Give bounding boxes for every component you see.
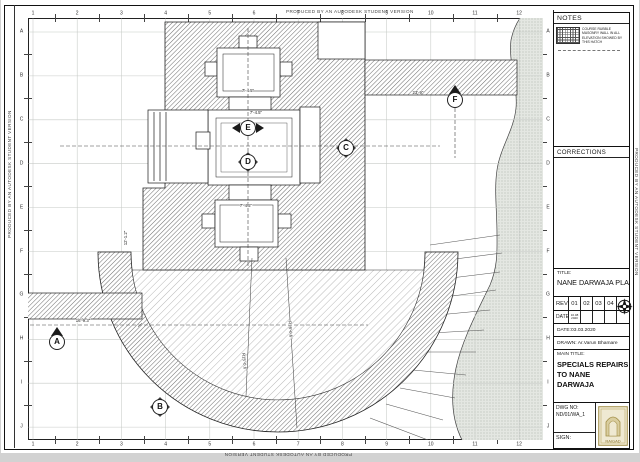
date-row-value: 16.08 2020 <box>569 311 581 323</box>
dimension-label: 16'-9.3" <box>76 318 91 323</box>
main-title-line1: SPECIALS REPAIRS <box>557 360 629 370</box>
dwg-no-value: ND/01/WA_1 <box>554 411 595 418</box>
rev-cell-03: 03 <box>593 297 605 310</box>
stamp-text: RAIGAD <box>605 439 620 444</box>
date-row-empty-1 <box>581 311 593 323</box>
title-section: TITLE: NANE DARWAJA PLAN <box>554 269 629 297</box>
dimension-label: 7'-4.5" <box>250 110 263 115</box>
corrections-section: CORRECTIONS <box>554 147 629 269</box>
east-wall-arm <box>365 60 517 95</box>
autodesk-banner-right: PRODUCED BY AN AUTODESK STUDENT VERSION <box>633 148 638 276</box>
title-label: TITLE: <box>554 269 629 276</box>
autodesk-banner-bottom: PRODUCED BY AN AUTODESK STUDENT VERSION <box>224 451 352 456</box>
left-wall <box>28 293 142 319</box>
dwg-no-cell: DWG NO: ND/01/WA_1 SIGN: <box>554 403 596 449</box>
rev-label: REV <box>554 297 569 310</box>
date-line: DATE:03.03.2020 <box>554 324 629 337</box>
sign-label: SIGN: <box>554 432 595 449</box>
drawing-title: NANE DARWAJA PLAN <box>554 276 629 287</box>
rev-cell-02: 02 <box>581 297 593 310</box>
autodesk-banner-left: PRODUCED BY AN AUTODESK STUDENT VERSION <box>8 110 13 238</box>
notes-legend: COURSE RUBBLE MASONRY WALL IN ALL ELEVAT… <box>556 27 627 44</box>
left-margin-line <box>14 5 15 448</box>
dimension-label: 12'-1.2" <box>123 230 128 245</box>
stamp-cell: RAIGAD <box>596 403 629 449</box>
drawn-line: DRAWN: Ar.Varun Bhamare <box>554 337 629 350</box>
masonry-hatch-swatch <box>556 27 580 44</box>
notes-section: NOTES COURSE RUBBLE MASONRY WALL IN ALL … <box>554 13 629 147</box>
date-row-label: DATE <box>554 311 569 323</box>
dwg-no-label: DWG NO: <box>554 403 595 411</box>
dimension-label: 23'-9" <box>413 90 424 95</box>
date-row-empty-2 <box>593 311 605 323</box>
dimension-label: 7'-4.5" <box>240 203 253 208</box>
main-title-line2: TO NANE DARWAJA <box>557 370 629 390</box>
autodesk-banner-top: PRODUCED BY AN AUTODESK STUDENT VERSION <box>283 10 417 15</box>
notes-header: NOTES <box>554 13 629 24</box>
raigad-seal-icon: RAIGAD <box>598 406 628 446</box>
drawing-sheet: { "border": { "autodesk_text": "PRODUCED… <box>0 0 640 462</box>
dwg-sign-section: DWG NO: ND/01/WA_1 SIGN: RAIGAD <box>554 403 629 449</box>
rev-cell-01: 01 <box>569 297 581 310</box>
main-title-section: MAIN TITLE: SPECIALS REPAIRS TO NANE DAR… <box>554 350 629 403</box>
north-compass-icon <box>616 298 633 315</box>
dimension-label: 7'-4.5" <box>242 88 255 93</box>
title-block: NOTES COURSE RUBBLE MASONRY WALL IN ALL … <box>553 12 630 449</box>
plan-drawing: 7'-4.5"7'-4.5"7'-4.5"12'-1.2"16'-9.3"23'… <box>28 18 543 440</box>
notes-placeholder-lines <box>558 50 620 51</box>
main-title-value: SPECIALS REPAIRS TO NANE DARWAJA <box>554 357 629 390</box>
main-title-label: MAIN TITLE: <box>554 350 629 357</box>
corrections-header: CORRECTIONS <box>554 147 629 158</box>
notes-legend-text: COURSE RUBBLE MASONRY WALL IN ALL ELEVAT… <box>582 27 627 44</box>
